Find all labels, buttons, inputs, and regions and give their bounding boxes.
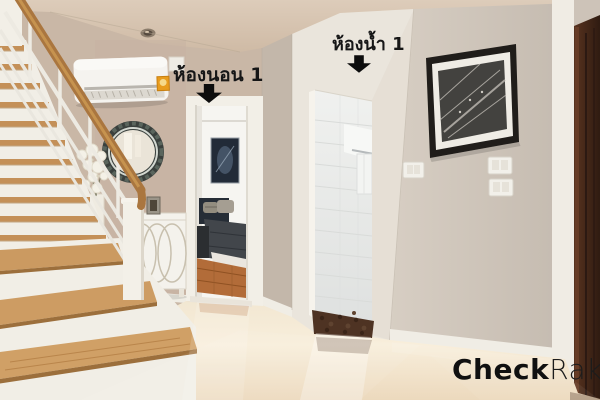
bedroom-doorway (186, 96, 263, 307)
checkraka-watermark: CheckRaka (452, 356, 600, 384)
bathroom-interior (315, 90, 374, 335)
side-table (197, 226, 209, 258)
watermark-bold-part: Check (452, 353, 549, 386)
energy-label (157, 76, 169, 90)
watermark-light-part: Raka (549, 353, 600, 386)
newel-post (121, 198, 146, 300)
wall-art-frame (426, 44, 521, 162)
bedroom-interior (196, 106, 246, 298)
scene-svg (0, 0, 600, 400)
bedroom-art (211, 138, 239, 183)
light-switch-plate (488, 157, 512, 174)
wood-door (552, 0, 600, 400)
light-switch-plate (489, 179, 513, 196)
down-arrow-icon (196, 84, 222, 103)
bathroom-doorway (309, 90, 374, 338)
interior-photo-hallway: ห้องนอน 1 ห้องน้ำ 1 CheckRaka (0, 0, 600, 400)
photo-frame-on-console (147, 197, 160, 214)
down-arrow-icon (347, 54, 371, 74)
light-switch-plate (403, 162, 424, 178)
door-frame (552, 0, 574, 400)
